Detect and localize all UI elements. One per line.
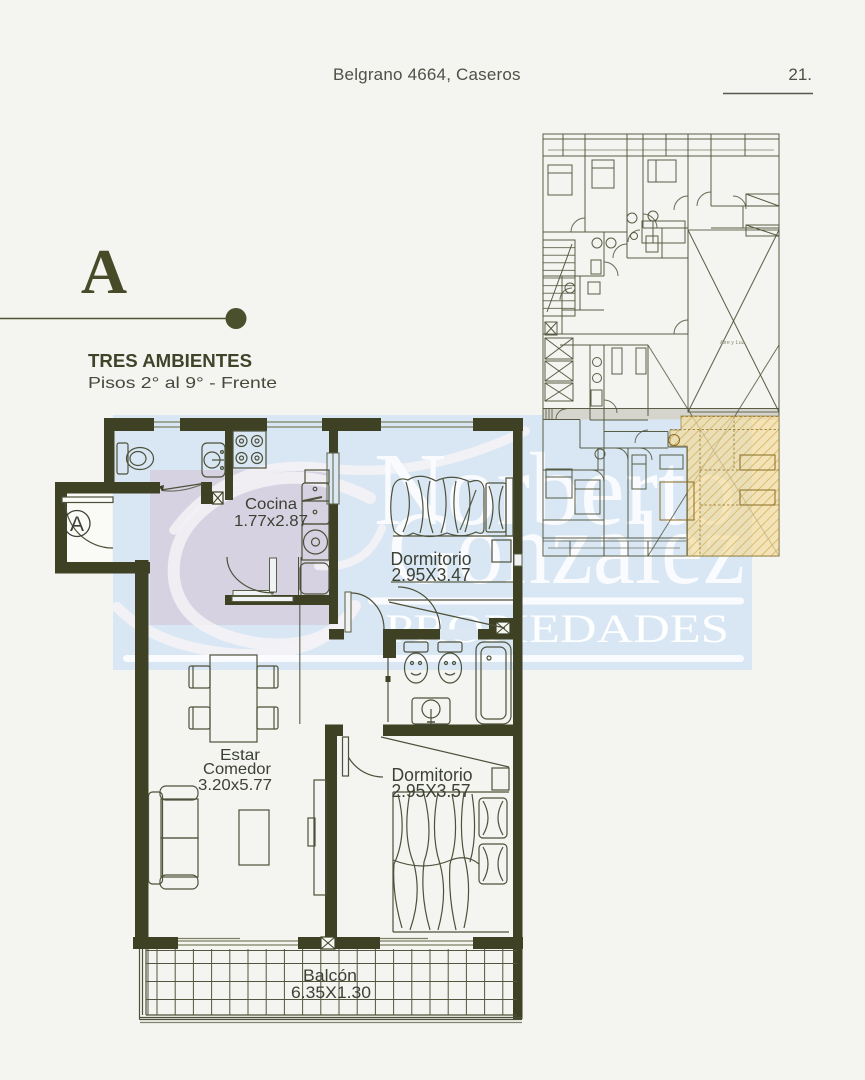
svg-text:21.: 21.: [788, 65, 812, 84]
svg-text:Cocina: Cocina: [245, 496, 297, 513]
svg-text:Belgrano 4664, Caseros: Belgrano 4664, Caseros: [333, 65, 521, 84]
svg-text:Comedor: Comedor: [203, 761, 272, 778]
svg-text:A: A: [81, 236, 127, 307]
svg-text:TRES AMBIENTES: TRES AMBIENTES: [88, 351, 252, 371]
svg-text:3.20x5.77: 3.20x5.77: [198, 777, 272, 794]
svg-text:1.77x2.87: 1.77x2.87: [234, 513, 308, 530]
svg-text:2.95X3.57: 2.95X3.57: [392, 781, 471, 801]
svg-text:Aire y Luz: Aire y Luz: [720, 340, 745, 346]
svg-text:6.35X1.30: 6.35X1.30: [291, 984, 371, 1002]
svg-text:Balcón: Balcón: [303, 967, 357, 985]
svg-text:A: A: [70, 513, 84, 536]
svg-text:2.95X3.47: 2.95X3.47: [392, 565, 471, 585]
svg-text:Pisos 2° al 9° - Frente: Pisos 2° al 9° - Frente: [88, 375, 277, 392]
